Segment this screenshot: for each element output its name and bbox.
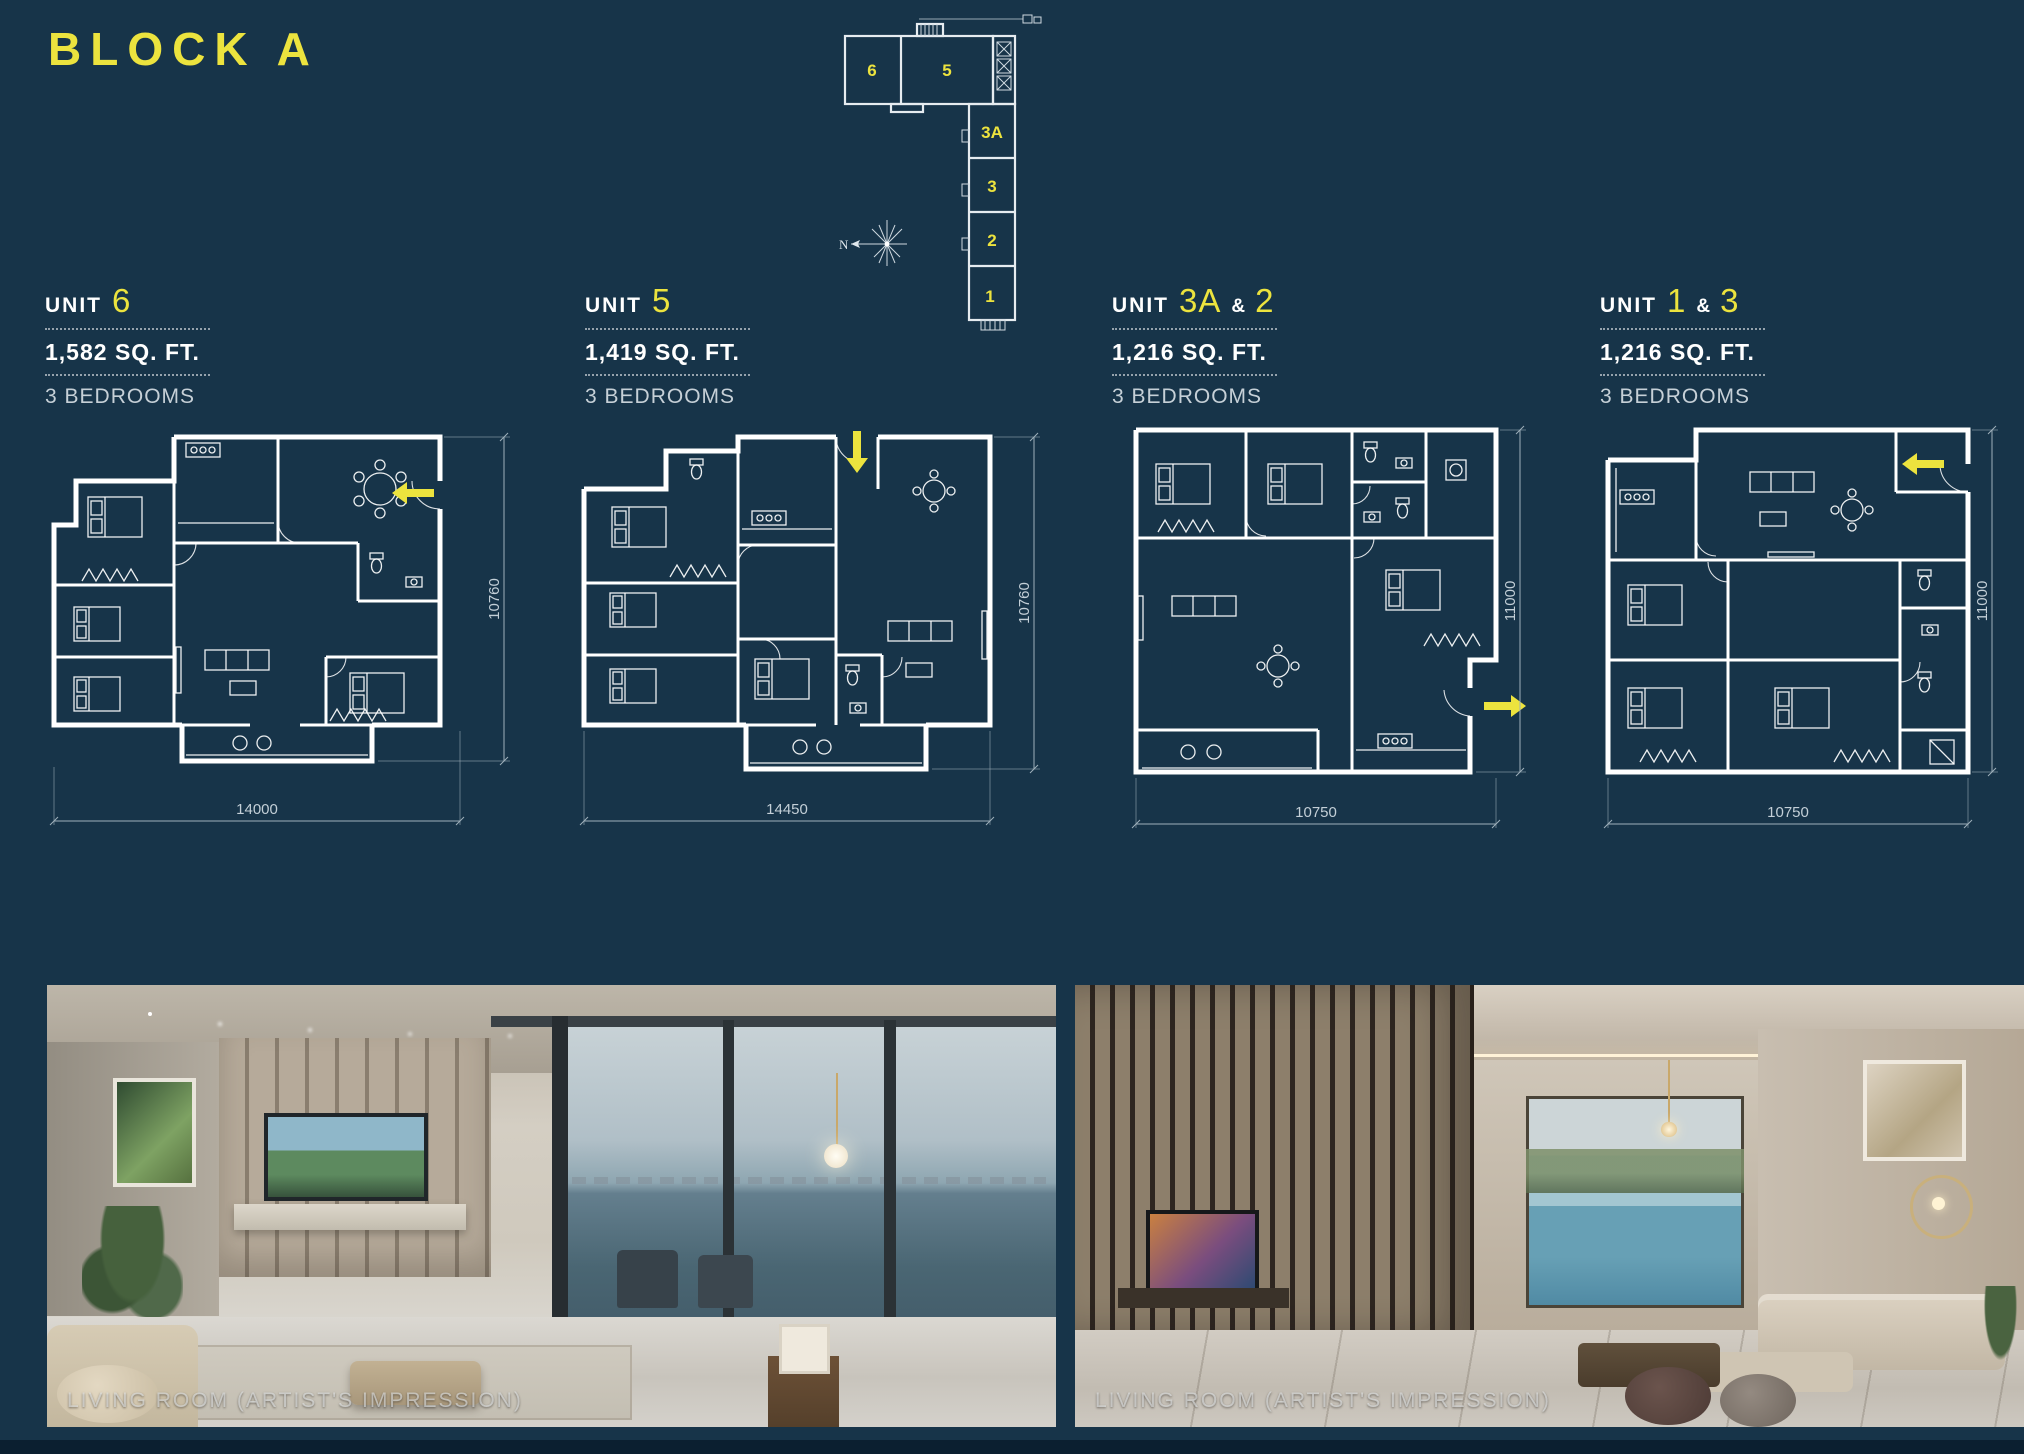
unit-1-3-info: UNIT 1 & 3 1,216 SQ. FT. 3 BEDROOMS	[1600, 282, 1830, 409]
unit-ampersand: &	[1231, 296, 1245, 318]
living-room-photo-left: LIVING ROOM (ARTIST'S IMPRESSION)	[47, 985, 1056, 1427]
north-compass-icon: N	[839, 220, 907, 266]
key-plan-unit-3a-label: 3A	[981, 123, 1003, 142]
city-skyline	[572, 1177, 1046, 1184]
outer-walls	[1608, 430, 1968, 772]
dotted-divider	[45, 374, 210, 376]
pendant-lamp-stem	[1668, 1060, 1670, 1126]
toilet-icon	[1918, 570, 1931, 590]
key-plan-unit-5-label: 5	[942, 61, 951, 80]
unit-3a-2-info: UNIT 3A & 2 1,216 SQ. FT. 3 BEDROOMS	[1112, 282, 1342, 409]
photo-frame	[779, 1324, 830, 1374]
svg-text:11000: 11000	[1974, 581, 1991, 622]
svg-text:14450: 14450	[766, 801, 808, 818]
pendant-lamp-bulb	[1661, 1122, 1676, 1137]
dotted-divider	[1112, 374, 1277, 376]
block-key-plan: 6 5 3A 3 2 1 N	[835, 12, 1075, 332]
dining-table-icon	[1257, 645, 1299, 687]
tv-cabinet-icon	[1138, 596, 1143, 640]
bed-icon	[1386, 570, 1440, 610]
balcony-chair	[698, 1255, 753, 1308]
bed-icon	[1628, 585, 1682, 625]
furniture	[1616, 468, 1954, 764]
unit-bedrooms: 3 BEDROOMS	[45, 385, 275, 409]
width-dimension: 10750	[1132, 778, 1500, 828]
width-dimension: 10750	[1604, 778, 1972, 828]
dotted-divider	[45, 328, 210, 330]
window-frame	[491, 1016, 1056, 1027]
coffee-table-icon	[230, 681, 256, 695]
sofa-icon	[888, 621, 952, 641]
bed-icon	[610, 669, 656, 703]
sink-icon	[1922, 625, 1938, 635]
unit-number: 1	[1667, 282, 1686, 320]
height-dimension: 10760	[932, 433, 1040, 773]
unit-word: UNIT	[585, 294, 642, 318]
pouf	[1625, 1367, 1710, 1424]
photo-caption: LIVING ROOM (ARTIST'S IMPRESSION)	[67, 1389, 523, 1413]
unit-word: UNIT	[1112, 294, 1169, 318]
sink-icon	[406, 577, 422, 587]
wall-art	[113, 1078, 197, 1188]
key-plan-unit-1-label: 1	[985, 287, 994, 306]
tv-console	[234, 1204, 466, 1231]
tv-console	[1118, 1288, 1289, 1308]
photo-caption: LIVING ROOM (ARTIST'S IMPRESSION)	[1095, 1389, 1551, 1413]
furniture	[610, 459, 987, 763]
unit-word: UNIT	[45, 294, 102, 318]
unit-area: 1,419 SQ. FT.	[585, 339, 815, 366]
furniture	[74, 443, 422, 755]
plant	[1977, 1286, 2024, 1383]
toilet-icon	[1364, 442, 1377, 462]
key-plan-unit-2-label: 2	[987, 231, 996, 250]
tv-cabinet-icon	[176, 647, 181, 693]
interior-walls	[1136, 430, 1496, 772]
key-plan-unit-6-label: 6	[867, 61, 876, 80]
stair-hatch-icon	[921, 24, 937, 36]
doors	[1696, 466, 1968, 682]
downlights	[148, 1012, 152, 1016]
bed-icon	[1775, 688, 1829, 728]
wardrobe-icon	[1834, 750, 1890, 762]
tv-screen	[264, 1113, 428, 1201]
entry-arrow-icon	[846, 431, 868, 473]
unit-5-info: UNIT 5 1,419 SQ. FT. 3 BEDROOMS	[585, 282, 815, 409]
outer-walls	[584, 437, 990, 769]
svg-text:11000: 11000	[1502, 581, 1519, 622]
unit-word: UNIT	[1600, 294, 1657, 318]
unit-area: 1,216 SQ. FT.	[1112, 339, 1342, 366]
bed-icon	[74, 677, 120, 711]
bed-icon	[350, 673, 404, 713]
hob-icon	[186, 443, 220, 457]
entry-arrow-icon	[1902, 453, 1944, 475]
toilet-icon	[690, 459, 703, 479]
sink-icon	[1396, 458, 1412, 468]
hob-icon	[752, 511, 786, 525]
svg-text:14000: 14000	[236, 801, 278, 818]
living-room-photo-right: LIVING ROOM (ARTIST'S IMPRESSION)	[1075, 985, 2024, 1427]
dotted-divider	[1600, 328, 1765, 330]
coffee-table-icon	[906, 663, 932, 677]
outer-walls	[1136, 430, 1496, 772]
wood-slat-wall	[1075, 985, 1474, 1334]
furniture	[1138, 442, 1480, 768]
bed-icon	[88, 497, 142, 537]
tv-cabinet-icon	[982, 611, 987, 659]
lift-icons	[997, 42, 1011, 90]
floor-plan-unit-6: 14000 10760	[40, 425, 520, 835]
washer-icon	[1446, 460, 1466, 480]
page-title: BLOCK A	[48, 22, 319, 76]
unit-number: 6	[112, 282, 131, 320]
unit-number-b: 2	[1255, 282, 1274, 320]
unit-number: 5	[652, 282, 671, 320]
hob-icon	[1620, 490, 1654, 504]
doors	[174, 481, 440, 677]
tv-screen	[1146, 1210, 1258, 1293]
key-plan-unit-3-label: 3	[987, 177, 996, 196]
entry-arrow-icon	[392, 482, 434, 504]
floor-plan-unit-3a-2: 10750 11000	[1128, 420, 1533, 832]
unit-area: 1,582 SQ. FT.	[45, 339, 275, 366]
wall-art	[1863, 1060, 1966, 1161]
unit-area: 1,216 SQ. FT.	[1600, 339, 1830, 366]
pouf	[1720, 1374, 1796, 1427]
north-label: N	[839, 237, 849, 252]
unit-number: 3A	[1179, 282, 1221, 320]
sink-icon	[850, 703, 866, 713]
dotted-divider	[1600, 374, 1765, 376]
bed-icon	[1628, 688, 1682, 728]
unit-bedrooms: 3 BEDROOMS	[1112, 385, 1342, 409]
toilet-icon	[846, 665, 859, 685]
svg-text:10760: 10760	[486, 578, 503, 620]
unit-bedrooms: 3 BEDROOMS	[585, 385, 815, 409]
dining-table-icon	[913, 470, 955, 512]
bed-icon	[612, 507, 666, 547]
wardrobe-icon	[330, 709, 386, 721]
unit-number-b: 3	[1720, 282, 1739, 320]
floor-lamp-stem	[836, 1073, 838, 1153]
footer-bar	[0, 1440, 2024, 1454]
doors	[1246, 486, 1470, 716]
wardrobe-icon	[670, 565, 726, 577]
svg-text:10750: 10750	[1767, 804, 1809, 821]
sofa-icon	[1750, 472, 1814, 492]
bed-icon	[74, 607, 120, 641]
garden-trees	[1526, 1149, 1744, 1193]
balcony-chair	[617, 1250, 678, 1307]
dotted-divider	[585, 328, 750, 330]
tv-cabinet-icon	[1768, 552, 1814, 557]
dining-table-icon	[1831, 489, 1873, 531]
svg-text:10750: 10750	[1295, 804, 1337, 821]
unit-6-info: UNIT 6 1,582 SQ. FT. 3 BEDROOMS	[45, 282, 275, 409]
wardrobe-icon	[1640, 750, 1696, 762]
coffee-table-icon	[1760, 512, 1786, 526]
dotted-divider	[1112, 328, 1277, 330]
bed-icon	[1156, 464, 1210, 504]
bed-icon	[755, 659, 809, 699]
sink-icon	[1364, 512, 1380, 522]
sofa-icon	[1172, 596, 1236, 616]
toilet-icon	[370, 553, 383, 573]
hob-icon	[1378, 734, 1412, 748]
toilet-icon	[1396, 498, 1409, 518]
floor-plan-unit-5: 14450 10760	[570, 425, 1050, 835]
bed-icon	[610, 593, 656, 627]
wardrobe-icon	[1424, 634, 1480, 646]
height-dimension: 11000	[1972, 426, 1998, 776]
interior-walls	[1608, 430, 1968, 772]
toilet-icon	[1918, 672, 1931, 692]
height-dimension: 11000	[1476, 426, 1526, 776]
bed-icon	[1268, 464, 1322, 504]
height-dimension: 10760	[378, 433, 510, 765]
dotted-divider	[585, 374, 750, 376]
svg-text:10760: 10760	[1016, 582, 1033, 624]
wardrobe-icon	[82, 569, 138, 581]
floor-plan-unit-1-3: 10750 11000	[1600, 420, 2005, 832]
unit-ampersand: &	[1696, 296, 1710, 318]
sofa-icon	[205, 650, 269, 670]
unit-bedrooms: 3 BEDROOMS	[1600, 385, 1830, 409]
wardrobe-icon	[1158, 520, 1214, 532]
pool-view-window	[1526, 1096, 1744, 1308]
brochure-page: BLOCK A	[0, 0, 2024, 1454]
width-dimension: 14450	[580, 731, 994, 825]
